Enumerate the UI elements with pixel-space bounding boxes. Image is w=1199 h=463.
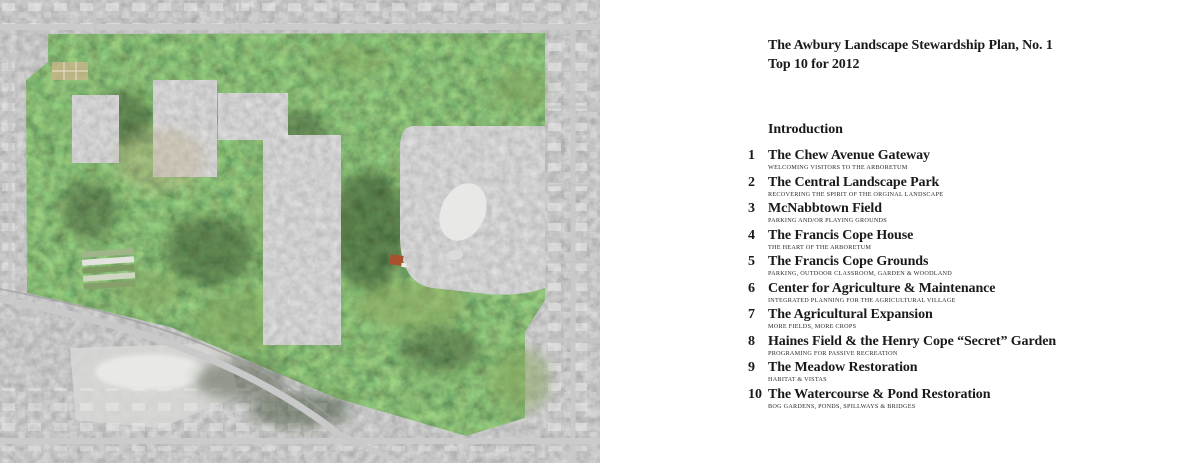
list-item: 2 The Central Landscape Park RECOVERING … <box>600 175 1199 202</box>
list-item: 6 Center for Agriculture & Maintenance I… <box>600 281 1199 308</box>
item-title: The Chew Avenue Gateway <box>768 148 1199 163</box>
plan-title: The Awbury Landscape Stewardship Plan, N… <box>768 36 1053 55</box>
greenhouse-rows <box>81 248 136 290</box>
list-item: 8 Haines Field & the Henry Cope “Secret”… <box>600 334 1199 361</box>
item-title: The Watercourse & Pond Restoration <box>768 387 1199 402</box>
item-number: 8 <box>748 334 755 349</box>
item-subtitle: PARKING, OUTDOOR CLASSROOM, GARDEN & WOO… <box>768 270 1199 278</box>
item-number: 3 <box>748 201 755 216</box>
awbury-aerial-map <box>0 0 600 463</box>
item-number: 10 <box>748 387 762 402</box>
item-title: The Central Landscape Park <box>768 175 1199 190</box>
item-subtitle: WELCOMING VISITORS TO THE ARBORETUM <box>768 164 1199 172</box>
item-number: 7 <box>748 307 755 322</box>
list-item: 1 The Chew Avenue Gateway WELCOMING VISI… <box>600 148 1199 175</box>
item-number: 1 <box>748 148 755 163</box>
item-number: 6 <box>748 281 755 296</box>
item-title: Haines Field & the Henry Cope “Secret” G… <box>768 334 1199 349</box>
section-heading-introduction: Introduction <box>768 122 843 138</box>
item-subtitle: HABITAT & VISTAS <box>768 376 1199 384</box>
item-number: 4 <box>748 228 755 243</box>
item-subtitle: BOG GARDENS, PONDS, SPILLWAYS & BRIDGES <box>768 403 1199 411</box>
item-title: The Meadow Restoration <box>768 360 1199 375</box>
list-item: 10 The Watercourse & Pond Restoration BO… <box>600 387 1199 414</box>
item-title: The Francis Cope House <box>768 228 1199 243</box>
list-item: 9 The Meadow Restoration HABITAT & VISTA… <box>600 360 1199 387</box>
top-10-list: 1 The Chew Avenue Gateway WELCOMING VISI… <box>600 148 1199 413</box>
item-number: 5 <box>748 254 755 269</box>
item-subtitle: RECOVERING THE SPIRIT OF THE ORGINAL LAN… <box>768 191 1199 199</box>
item-subtitle: MORE FIELDS, MORE CROPS <box>768 323 1199 331</box>
item-title: The Francis Cope Grounds <box>768 254 1199 269</box>
item-subtitle: INTEGRATED PLANNING FOR THE AGRICULTURAL… <box>768 297 1199 305</box>
item-number: 2 <box>748 175 755 190</box>
item-number: 9 <box>748 360 755 375</box>
plan-subtitle: Top 10 for 2012 <box>768 55 1053 74</box>
list-item: 4 The Francis Cope House THE HEART OF TH… <box>600 228 1199 255</box>
list-item: 7 The Agricultural Expansion MORE FIELDS… <box>600 307 1199 334</box>
list-item: 3 McNabbtown Field PARKING AND/OR PLAYIN… <box>600 201 1199 228</box>
list-item: 5 The Francis Cope Grounds PARKING, OUTD… <box>600 254 1199 281</box>
item-subtitle: PROGRAMING FOR PASSIVE RECREATION <box>768 350 1199 358</box>
item-subtitle: PARKING AND/OR PLAYING GROUNDS <box>768 217 1199 225</box>
item-title: Center for Agriculture & Maintenance <box>768 281 1199 296</box>
item-subtitle: THE HEART OF THE ARBORETUM <box>768 244 1199 252</box>
item-title: The Agricultural Expansion <box>768 307 1199 322</box>
contents-panel: The Awbury Landscape Stewardship Plan, N… <box>600 0 1199 463</box>
plan-title-block: The Awbury Landscape Stewardship Plan, N… <box>768 36 1053 74</box>
aerial-map-panel <box>0 0 600 463</box>
item-title: McNabbtown Field <box>768 201 1199 216</box>
